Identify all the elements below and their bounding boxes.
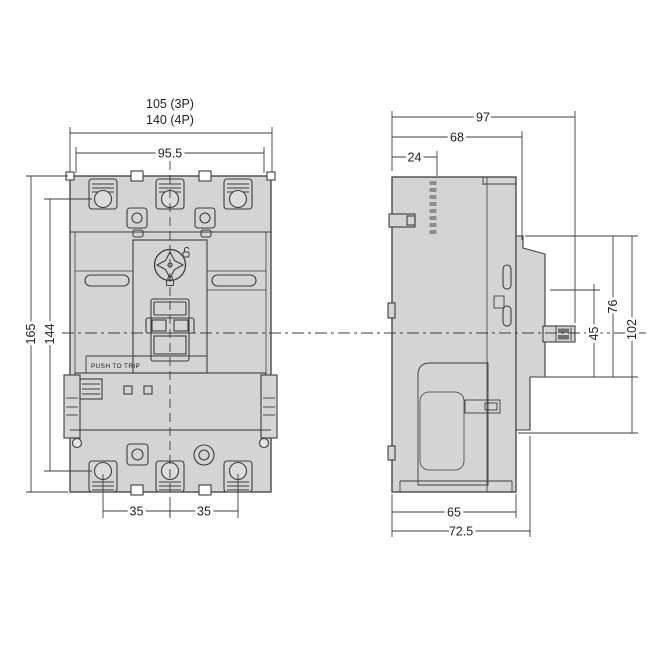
dim-label-terminal-span: 144 [43, 324, 57, 345]
dim-label-68: 68 [450, 131, 464, 145]
top-notch-right [199, 171, 211, 181]
top-notch-left [131, 171, 143, 181]
back-clip-lower [388, 446, 395, 460]
mount-hole-left [73, 439, 82, 448]
side-channel-left [64, 375, 80, 438]
mount-hole-right [260, 439, 269, 448]
dim-label-102: 102 [625, 319, 639, 340]
technical-drawing-page: PUSH TO TRIP [0, 0, 650, 650]
back-clip-upper [388, 303, 395, 318]
front-body-outline [70, 176, 271, 492]
dim-label-width-3p: 105 (3P) [146, 97, 194, 111]
dim-label-45: 45 [587, 327, 601, 341]
dim-label-72-5: 72.5 [449, 525, 473, 539]
dim-label-body-width: 95.5 [158, 147, 182, 161]
dim-height-102: 102 [625, 236, 639, 433]
bottom-notch-left [131, 485, 143, 495]
dim-height-76: 76 [606, 236, 620, 377]
dim-height-45: 45 [587, 284, 601, 377]
dim-label-97: 97 [476, 111, 490, 125]
side-view [388, 177, 575, 492]
toggle-handle-side [543, 326, 575, 342]
dim-label-76: 76 [606, 300, 620, 314]
top-corner-step-right [267, 172, 275, 180]
dim-label-pitch-2: 35 [197, 505, 211, 519]
dim-label-65: 65 [447, 506, 461, 520]
side-channel-right [261, 375, 277, 438]
dim-overall-width: 105 (3P) 140 (4P) [70, 97, 272, 172]
dim-depth-24: 24 [392, 151, 437, 177]
push-to-trip-label: PUSH TO TRIP [91, 363, 140, 370]
breaker-outline-drawing: PUSH TO TRIP [0, 0, 650, 650]
terminal-top-3 [224, 179, 252, 209]
dim-label-width-4p: 140 (4P) [146, 113, 194, 127]
dim-label-pitch-1: 35 [130, 505, 144, 519]
bottom-notch-right [199, 485, 211, 495]
dim-label-24: 24 [408, 151, 422, 165]
terminal-top-1 [89, 179, 117, 209]
dim-label-overall-height: 165 [24, 324, 38, 345]
